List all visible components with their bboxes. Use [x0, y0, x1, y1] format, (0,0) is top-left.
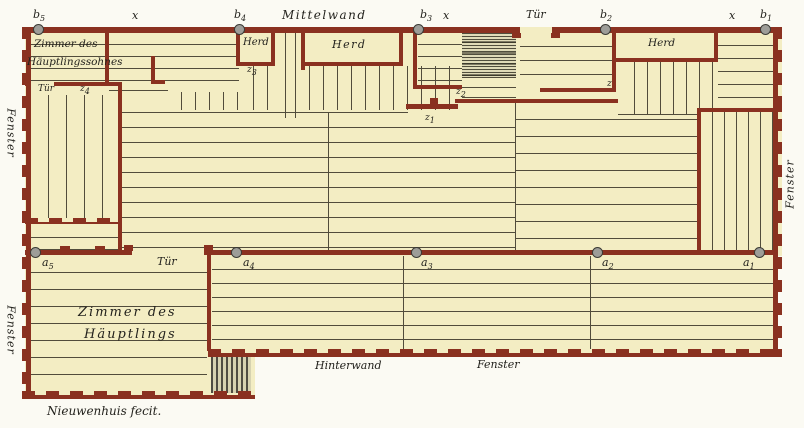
label-herd-3: Herd — [648, 38, 675, 49]
label-fenster-bottom: Fenster — [477, 359, 519, 370]
planks-room-b — [109, 33, 239, 90]
label-herd-1: Herd — [243, 38, 269, 48]
wall-z1-tick — [430, 98, 438, 104]
door-jamb-mid-right — [204, 245, 213, 251]
wall-hearth2-right — [399, 30, 403, 66]
planks-right-vertical-room — [701, 112, 773, 250]
planks-central-right-hall — [515, 103, 697, 250]
divider-gallery-2 — [590, 256, 591, 349]
label-b1: b1 — [760, 9, 772, 23]
planks-room-tuer — [520, 33, 612, 88]
label-a3: a3 — [421, 257, 433, 271]
signature: Nieuwenhuis fecit. — [47, 405, 161, 417]
label-z2: z2 — [456, 88, 466, 99]
divider-central-hall — [328, 113, 329, 250]
divider-central-right — [515, 103, 516, 250]
planks-left-vertical-room — [31, 95, 118, 218]
door-jamb-top-left — [512, 33, 521, 38]
wall-middle-right — [204, 250, 778, 255]
wall-notch-2 — [95, 246, 105, 251]
planks-room-right — [718, 33, 773, 108]
post-a4 — [231, 247, 242, 258]
line-central-top — [122, 112, 408, 113]
wall-mittelwand-right — [552, 27, 782, 33]
wall-gallery-left — [207, 253, 211, 351]
wall-room-son-bottom-a — [25, 82, 31, 86]
label-mittelwand: Mittelwand — [282, 9, 367, 21]
label-room-son-line1: Zimmer des — [34, 39, 97, 50]
wall-room-b3-bottom — [413, 85, 462, 89]
wall-hearth1-left — [236, 30, 240, 66]
planks-chief-room — [31, 256, 207, 391]
post-a5 — [30, 247, 41, 258]
label-a2: a2 — [602, 257, 614, 271]
label-room-chief-line2: Häuptlings — [84, 328, 177, 341]
planks-below-hatch — [462, 78, 516, 99]
label-room-son-line2: Häuptlingssohnes — [27, 57, 123, 68]
longhouse-floor-plan: b5 x b4 Mittelwand b3 x Tür b2 x b1 a5 T… — [0, 0, 804, 428]
wall-room-b3-left — [413, 30, 417, 89]
wall-middle-left — [25, 250, 132, 255]
label-b5: b5 — [33, 9, 45, 23]
wall-hearth1-right — [271, 30, 275, 66]
label-fenster-right: Fenster — [785, 159, 796, 208]
post-b5 — [33, 24, 44, 35]
entrance-ladder-hatch — [211, 357, 251, 393]
post-b1 — [760, 24, 771, 35]
label-a4: a4 — [243, 257, 255, 271]
wall-stub-room-b-foot — [151, 80, 165, 84]
wall-right-fenster — [773, 27, 782, 357]
post-b2 — [600, 24, 611, 35]
post-a1 — [754, 247, 765, 258]
planks-central-hall — [122, 113, 515, 250]
wall-hinterwand — [208, 349, 778, 357]
label-b4: b4 — [234, 9, 246, 23]
label-x-left: x — [132, 10, 138, 21]
wall-hearth2-bottom — [301, 62, 403, 66]
planks-mid-vertical-small — [168, 92, 240, 110]
divider-gallery-1 — [403, 256, 404, 349]
label-tuer-left: Tür — [38, 85, 54, 94]
label-a1: a1 — [743, 257, 755, 271]
planks-strip-between-hearths — [276, 33, 301, 118]
label-b2: b2 — [600, 9, 612, 23]
label-fenster-left-upper: Fenster — [6, 108, 17, 157]
wall-left-vertical-room-right — [118, 82, 122, 250]
label-room-chief-line1: Zimmer des — [78, 306, 177, 319]
door-jamb-top-right — [551, 33, 560, 38]
label-a5: a5 — [42, 257, 54, 271]
label-fenster-left-lower: Fenster — [6, 305, 17, 354]
wall-room-tuer-bottom — [540, 88, 616, 92]
post-b3 — [413, 24, 424, 35]
line-below-hatch — [462, 77, 516, 78]
wall-right-vertical-room-left — [697, 108, 701, 254]
wall-right-room-bottom — [697, 108, 782, 112]
label-x-mid: x — [443, 10, 449, 21]
wall-left-room-sill — [25, 218, 122, 224]
label-hinterwand: Hinterwand — [315, 360, 381, 371]
planks-room-b3 — [418, 33, 462, 85]
label-b3: b3 — [420, 9, 432, 23]
door-jamb-mid-left — [124, 245, 133, 251]
label-tuer-top: Tür — [526, 9, 546, 20]
wall-bottom-left — [22, 391, 255, 399]
label-z: z — [607, 80, 612, 91]
label-tuer-mid: Tür — [157, 256, 177, 267]
line-right-top — [618, 114, 697, 115]
label-x-right: x — [729, 10, 735, 21]
wall-z1-notch — [406, 104, 458, 109]
label-z1: z1 — [425, 114, 435, 125]
post-b4 — [234, 24, 245, 35]
label-z4: z4 — [80, 85, 90, 96]
sleeping-platform-hatch — [462, 30, 516, 77]
label-z3: z3 — [247, 66, 257, 77]
wall-notch-1 — [60, 246, 70, 251]
label-herd-2: Herd — [332, 39, 366, 50]
wall-hearth3-bottom — [616, 58, 718, 62]
wall-central-top — [455, 99, 618, 103]
wall-hearth3-right — [714, 27, 718, 62]
planks-gallery — [212, 256, 773, 349]
